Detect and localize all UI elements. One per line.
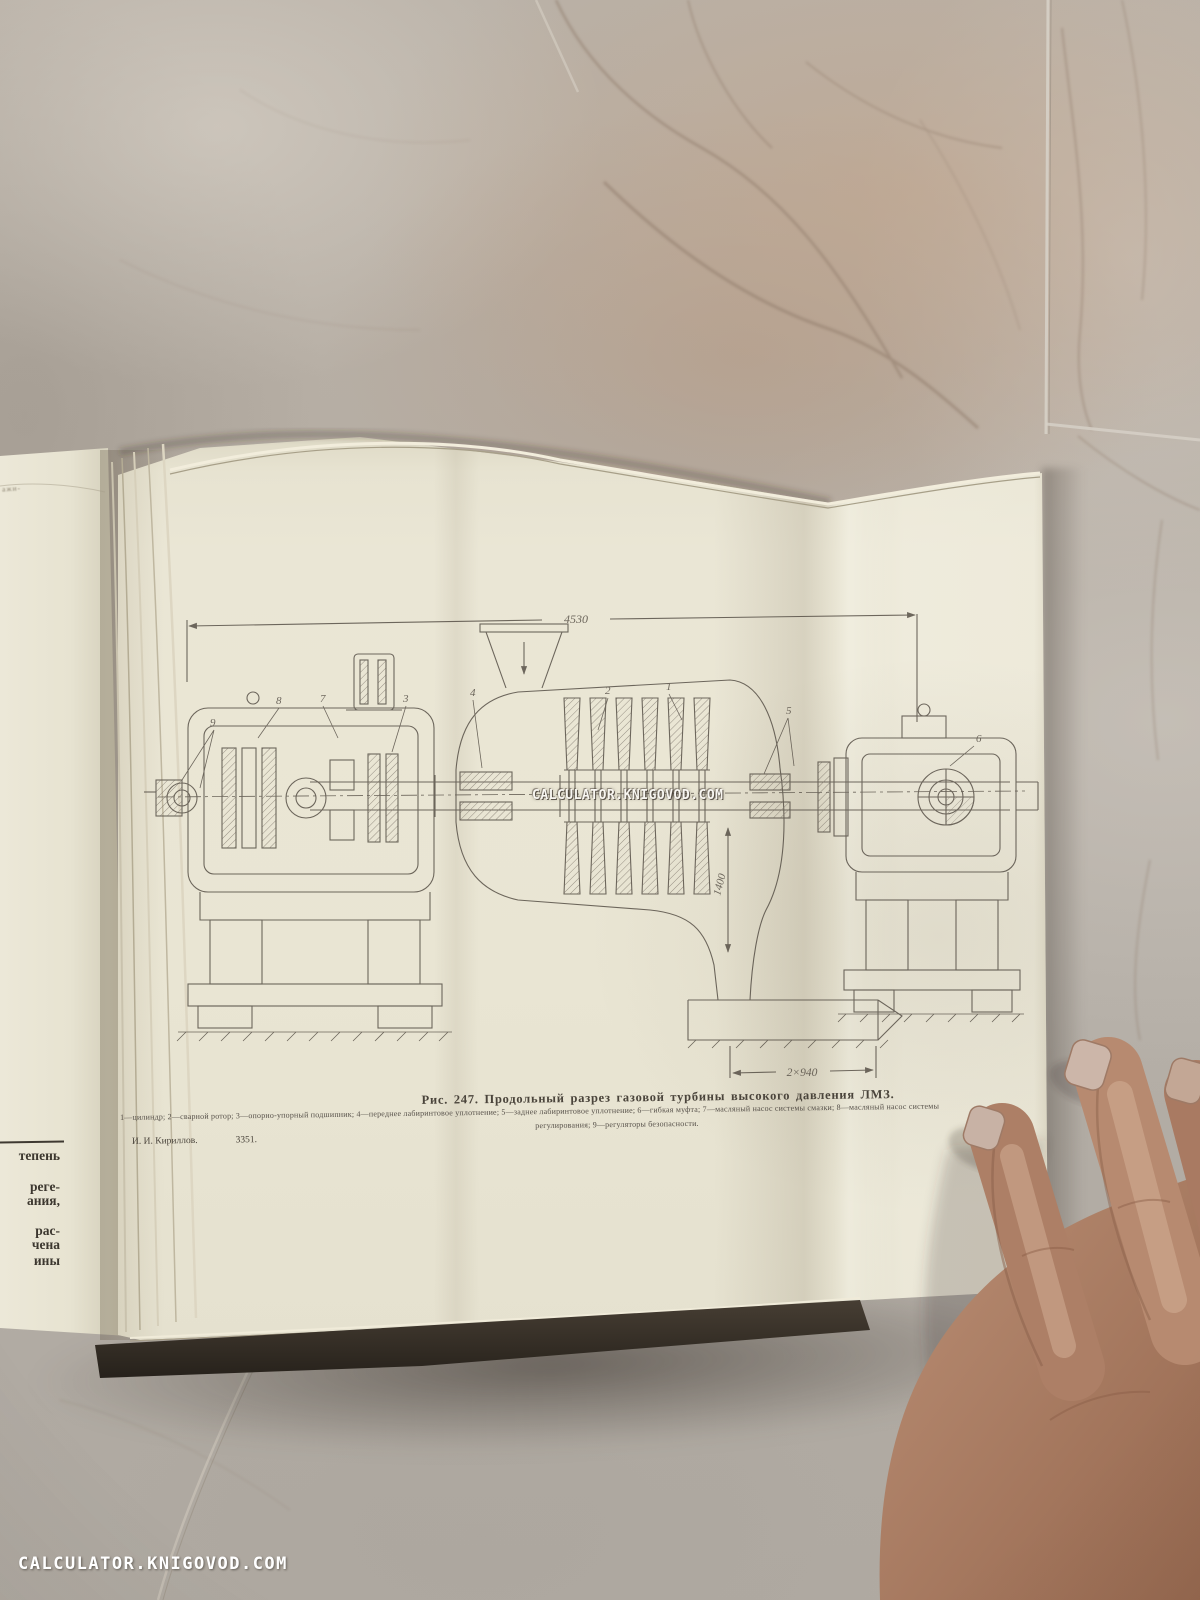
watermark-bottom: CALCULATOR.KNIGOVOD.COM bbox=[18, 1554, 288, 1574]
watermark-center: CALCULATOR.KNIGOVOD.COM bbox=[532, 788, 724, 803]
photo-of-open-book: ажи- тепень реге- ания, рас- чена ины bbox=[0, 0, 1200, 1600]
